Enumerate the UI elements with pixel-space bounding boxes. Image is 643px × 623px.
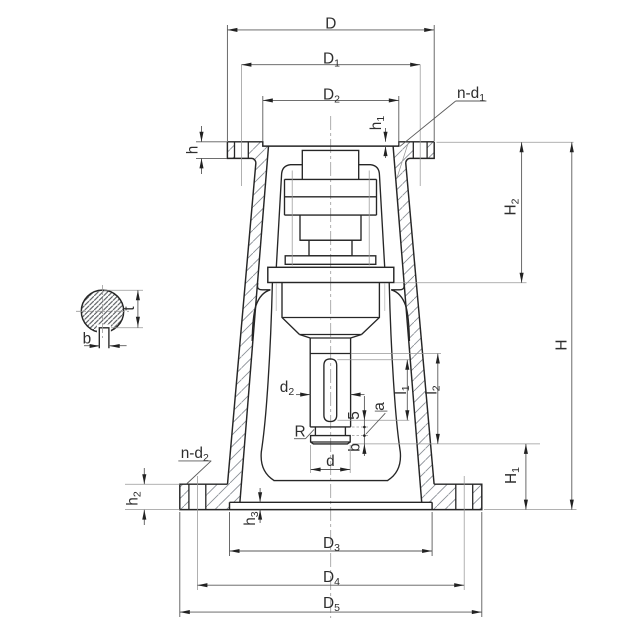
svg-text:a: a — [371, 402, 388, 411]
svg-text:D: D — [325, 16, 336, 33]
svg-text:R: R — [294, 424, 305, 441]
svg-text:t: t — [121, 306, 138, 311]
svg-text:h: h — [185, 146, 202, 155]
svg-text:b: b — [346, 443, 363, 452]
svg-text:b: b — [83, 331, 92, 348]
svg-text:5: 5 — [346, 411, 363, 420]
svg-text:d: d — [326, 453, 335, 470]
svg-text:H: H — [554, 339, 571, 350]
